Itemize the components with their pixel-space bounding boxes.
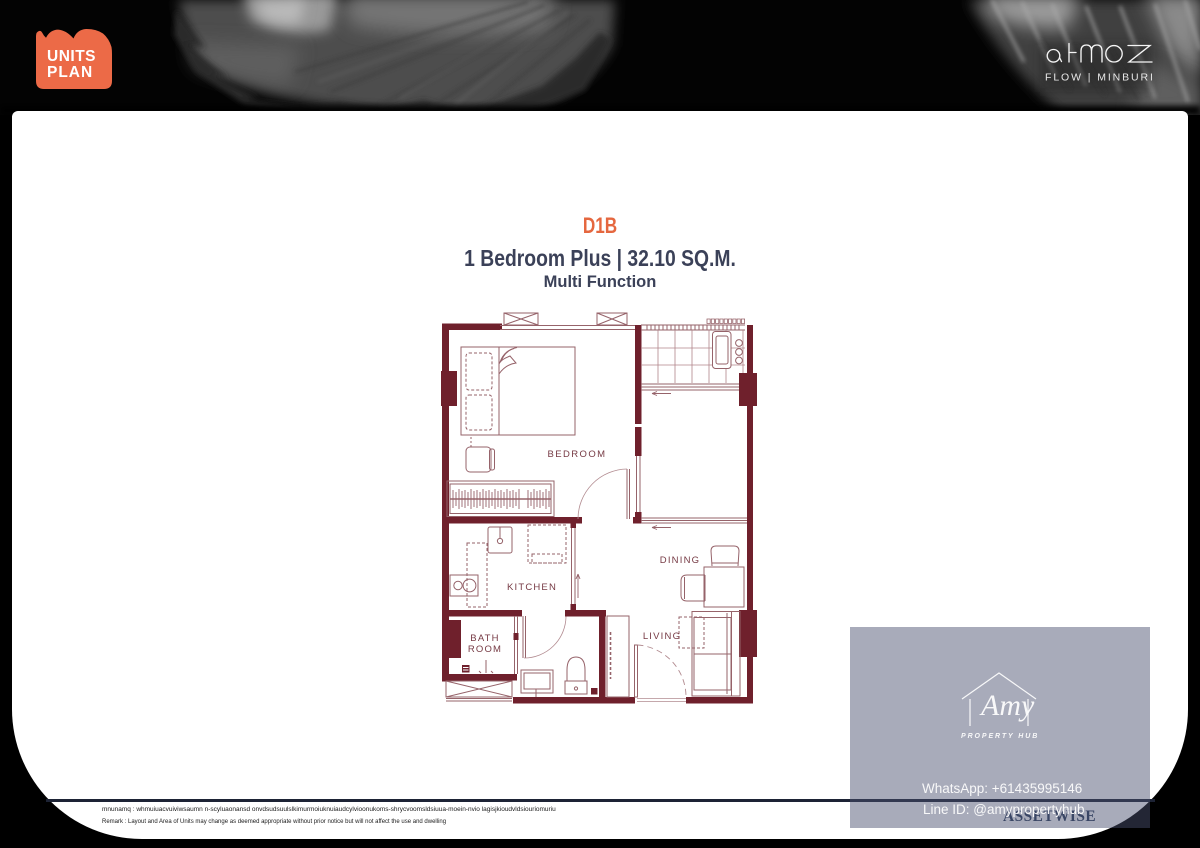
svg-text:PROPERTY HUB: PROPERTY HUB — [961, 733, 1039, 740]
svg-text:BATH: BATH — [470, 633, 499, 644]
svg-text:DINING: DINING — [660, 555, 700, 566]
svg-text:LIVING: LIVING — [643, 631, 681, 642]
svg-text:Amy: Amy — [979, 689, 1035, 722]
svg-text:BEDROOM: BEDROOM — [548, 449, 607, 460]
svg-text:FLOW | MINBURI: FLOW | MINBURI — [1045, 72, 1155, 84]
svg-text:PLAN: PLAN — [47, 64, 93, 81]
svg-text:ROOM: ROOM — [468, 644, 502, 655]
svg-text:UNITS: UNITS — [47, 48, 96, 65]
svg-text:KITCHEN: KITCHEN — [507, 582, 557, 593]
